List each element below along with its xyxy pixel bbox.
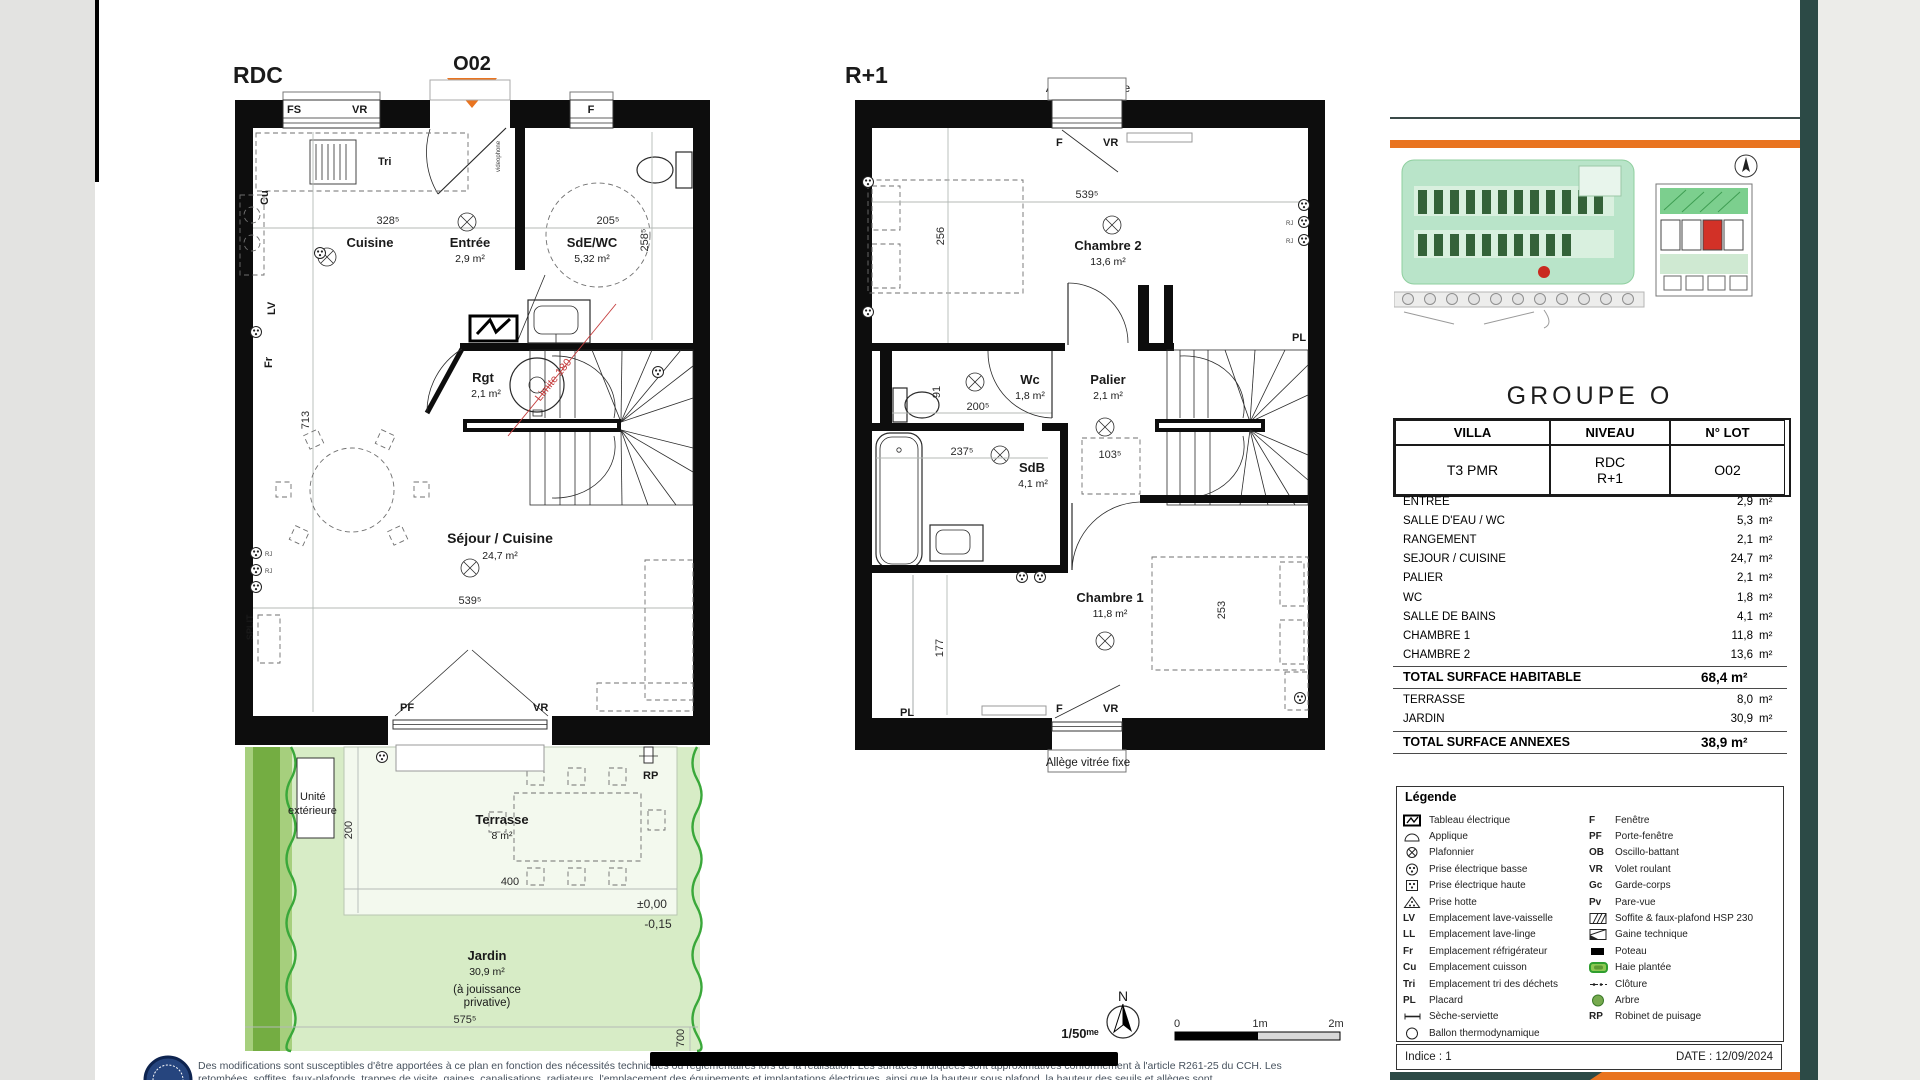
title-block-panel: GROUPE O VILLA NIVEAU N° LOT T3 PMR RDC … [1390,0,1800,1080]
surface-value: 2,1 [1701,572,1753,584]
r1-dim-256: 256 [935,227,947,245]
page-margin-right [1818,0,1920,1080]
rdc-vr-label: VR [352,104,367,116]
surface-unit: m² [1753,496,1787,508]
niveau-line1: RDC [1551,454,1669,470]
lv-label: LV [266,301,278,315]
legend-item: Gaine technique [1589,927,1779,943]
r1-dim-177: 177 [934,639,946,657]
scale-2m: 2m [1328,1018,1343,1030]
wc-area: 1,8 m² [1015,390,1045,402]
tri-abbr: Tri [1403,979,1429,990]
panel-divider-line [1390,117,1800,119]
legend-label: Gaine technique [1615,929,1688,940]
redaction-bar [650,1052,1118,1066]
plan-sheet: Unité extérieure 200 Terrasse 8 m² 400 R… [0,0,1920,1080]
annexe-unit: m² [1753,713,1787,725]
surface-label: SEJOUR / CUISINE [1393,553,1701,565]
seche-serviette-icon [1403,1010,1429,1023]
surface-label: SALLE D'EAU / WC [1393,515,1701,527]
group-title: GROUPE O [1393,382,1787,411]
entree-label: Entrée [450,235,490,250]
pl-right-label: PL [1292,332,1306,344]
legend-item: OBOscillo-battant [1589,845,1779,861]
gaine-icon [1589,928,1615,941]
legend-item: Tableau électrique [1403,812,1587,828]
annexe-value: 8,0 [1701,694,1753,706]
annexe-label: JARDIN [1393,713,1701,725]
floor-plans-drawing: Unité extérieure 200 Terrasse 8 m² 400 R… [0,0,1390,1080]
surface-row: CHAMBRE 111,8m² [1393,626,1787,645]
rp-label: RP [643,770,658,782]
surface-row: SEJOUR / CUISINE24,7m² [1393,550,1787,569]
rule [1393,666,1787,667]
f-abbr: F [1589,815,1615,826]
legend-label: Haie plantée [1615,962,1671,973]
dim-328: 328⁵ [377,215,400,227]
rdc-f-label: F [588,104,595,116]
legend-label: Emplacement réfrigérateur [1429,946,1547,957]
surfaces-list: ENTREE2,9m² SALLE D'EAU / WC5,3m² RANGEM… [1393,492,1787,665]
rule [1393,731,1787,732]
certification-stamp [145,1057,191,1080]
surface-value: 2,1 [1701,534,1753,546]
tableau-electrique-icon [1403,814,1429,827]
unite-exterieure-label: Unité [300,791,326,803]
surface-unit: m² [1753,630,1787,642]
legend-label: Arbre [1615,995,1639,1006]
arbre-icon [1589,994,1615,1007]
dim-258: 258⁵ [639,229,651,252]
legend-label: Applique [1429,831,1468,842]
vr-bottom-label: VR [533,702,548,714]
compass-icon [1735,155,1757,177]
surface-row: CHAMBRE 213,6m² [1393,646,1787,665]
legend-label: Tableau électrique [1429,815,1510,826]
legend-item: Arbre [1589,992,1779,1008]
annexe-label: TERRASSE [1393,694,1701,706]
legend-label: Fenêtre [1615,815,1649,826]
unite-exterieure-label2: extérieure [288,805,337,817]
rdc-title: RDC [233,62,283,88]
legend-label: Robinet de puisage [1615,1011,1701,1022]
north-label: N [1118,988,1128,1004]
palier-label: Palier [1090,372,1125,387]
ll-abbr: LL [1403,929,1429,940]
surface-row: PALIER2,1m² [1393,569,1787,588]
rdc-fs-label: FS [287,104,301,116]
surface-unit: m² [1753,534,1787,546]
surface-value: 24,7 [1701,553,1753,565]
scale-ratio: 1/50ᵐᵉ [1061,1026,1099,1041]
plafonnier-icon [1403,846,1429,859]
rdc-plan: RDC O02 FS VR F videophone [233,53,710,771]
rj-label-2: RJ [265,569,272,575]
footer-teal-stripe [1390,1072,1602,1080]
dim-713: 713 [300,411,312,429]
legend-item: Poteau [1589,943,1779,959]
r1-rj-1: RJ [1286,221,1293,227]
allege-bottom-label: Allège vitrée fixe [1046,757,1130,769]
tri-label: Tri [378,156,391,168]
sde-area: 5,32 m² [574,253,610,265]
legend-label: Emplacement lave-linge [1429,929,1536,940]
r1-f-bottom: F [1056,703,1063,715]
total-annexes-row: TOTAL SURFACE ANNEXES 38,9 m² [1393,735,1787,750]
legend-item: VRVolet roulant [1589,861,1779,877]
scale-0: 0 [1174,1018,1180,1030]
rj-label-1: RJ [265,552,272,558]
legend-label: Pare-vue [1615,897,1656,908]
legend-item: LVEmplacement lave-vaisselle [1403,910,1587,926]
legend-item: PFPorte-fenêtre [1589,828,1779,844]
surface-label: CHAMBRE 1 [1393,630,1701,642]
legend-item: Plafonnier [1403,845,1587,861]
videophone-label: videophone [496,140,502,172]
r1-dim-200: 200⁵ [967,401,990,413]
r1-dim-91: 91 [931,386,943,398]
cu-abbr: Cu [1403,962,1429,973]
ballon-icon [1403,1027,1429,1040]
legend-label: Garde-corps [1615,880,1671,891]
haie-plantee-icon [1589,961,1615,974]
annexe-row: JARDIN30,9m² [1393,709,1787,728]
r1-vr-top: VR [1103,137,1118,149]
info-header-niveau: NIVEAU [1550,420,1670,445]
north-compass-icon: N [1107,988,1139,1038]
sejour-area: 24,7 m² [482,550,518,562]
r1-dim-539: 539⁵ [1076,189,1099,201]
terrasse-area: 8 m² [492,830,514,842]
chambre1-area: 11,8 m² [1093,608,1128,620]
legend-item: Prise électrique haute [1403,878,1587,894]
legend-title: Légende [1405,790,1456,804]
lot-marker-label: O02 [453,53,491,75]
surface-label: CHAMBRE 2 [1393,649,1701,661]
legend-item: Ballon thermodynamique [1403,1025,1587,1041]
dim-575: 575⁵ [454,1014,477,1026]
revision-bar: Indice : 1 DATE : 12/09/2024 [1396,1044,1782,1070]
legend-label: Prise électrique basse [1429,864,1527,875]
chambre2-label: Chambre 2 [1074,238,1141,253]
surface-value: 4,1 [1701,611,1753,623]
page-edge-line [95,0,99,182]
pf-abbr: PF [1589,831,1615,842]
ob-abbr: OB [1589,847,1615,858]
terrasse-label: Terrasse [475,812,528,827]
surface-value: 5,3 [1701,515,1753,527]
legend-label: Placard [1429,995,1463,1006]
surface-value: 11,8 [1701,630,1753,642]
r1-vr-bottom: VR [1103,703,1118,715]
legend-item: Haie plantée [1589,960,1779,976]
legend-item: FrEmplacement réfrigérateur [1403,943,1587,959]
r1-dim-253: 253 [1216,601,1228,619]
prise-basse-icon [1403,863,1429,876]
r1-plan: R+1 Allège vitrée fixe F VR Chambre 2 13… [845,62,1325,772]
legend-label: Emplacement lave-vaisselle [1429,913,1553,924]
legend-item: Soffite & faux-plafond HSP 230 [1589,910,1779,926]
legend-label: Prise électrique haute [1429,880,1526,891]
legend-column-right: FFenêtre PFPorte-fenêtre OBOscillo-batta… [1589,812,1779,1025]
pl-abbr: PL [1403,995,1429,1006]
r1-title: R+1 [845,62,888,88]
legend-label: Poteau [1615,946,1647,957]
surface-value: 13,6 [1701,649,1753,661]
total-habitable-label: TOTAL SURFACE HABITABLE [1393,670,1701,685]
surface-unit: m² [1753,649,1787,661]
chambre1-label: Chambre 1 [1076,590,1143,605]
prise-hotte-icon [1403,896,1429,909]
legend-item: LLEmplacement lave-linge [1403,927,1587,943]
surface-row: WC1,8m² [1393,588,1787,607]
dim-205: 205⁵ [597,215,620,227]
info-villa-value: T3 PMR [1395,445,1550,495]
scale-bar: 1/50ᵐᵉ N 0 1m 2m [1061,988,1343,1041]
gc-abbr: Gc [1589,880,1615,891]
footer-stripes [1390,1072,1800,1080]
side-accent-strip [1800,0,1818,1080]
legend-label: Volet roulant [1615,864,1671,875]
surface-row: SALLE DE BAINS4,1m² [1393,607,1787,626]
dim-700: 700 [675,1029,687,1047]
jardin-area: 30,9 m² [469,966,505,978]
rule [1393,753,1787,754]
rgt-area: 2,1 m² [471,388,501,400]
jardin-label: Jardin [467,948,506,963]
legend-box: Légende Tableau électrique Applique Plaf… [1396,786,1784,1042]
annexe-row: TERRASSE8,0m² [1393,690,1787,709]
cloture-icon [1589,978,1615,991]
indice-label: Indice : 1 [1405,1051,1452,1063]
legend-label: Emplacement cuisson [1429,962,1527,973]
lot-info-table: VILLA NIVEAU N° LOT T3 PMR RDC R+1 O02 [1393,418,1791,497]
page-margin-left [0,0,95,1080]
surface-value: 1,8 [1701,592,1753,604]
surface-row: ENTREE2,9m² [1393,492,1787,511]
annexes-list: TERRASSE8,0m² JARDIN30,9m² [1393,690,1787,728]
surface-unit: m² [1753,553,1787,565]
date-label: DATE : 12/09/2024 [1676,1051,1773,1063]
surface-label: SALLE DE BAINS [1393,611,1701,623]
r1-dim-237: 237⁵ [951,446,974,458]
info-niveau-value: RDC R+1 [1550,445,1670,495]
surface-label: ENTREE [1393,496,1701,508]
entree-area: 2,9 m² [455,253,485,265]
legend-label: Porte-fenêtre [1615,831,1673,842]
legend-item: Prise hotte [1403,894,1587,910]
total-annexes-label: TOTAL SURFACE ANNEXES [1393,735,1701,750]
annexe-value: 30,9 [1701,713,1753,725]
jouissance-2: privative) [464,997,511,1009]
surface-row: RANGEMENT2,1m² [1393,530,1787,549]
surface-unit: m² [1753,611,1787,623]
legend-label: Soffite & faux-plafond HSP 230 [1615,913,1753,924]
info-header-villa: VILLA [1395,420,1550,445]
villa-type: T3 PMR [1396,462,1549,478]
dim-400: 400 [501,876,519,888]
panel-orange-bar [1390,140,1800,148]
sdb-label: SdB [1019,460,1045,475]
r1-dim-103: 103⁵ [1099,449,1122,461]
rule [1393,688,1787,689]
info-lot-value: O02 [1670,445,1785,495]
legend-item: TriEmplacement tri des déchets [1403,976,1587,992]
soffite-icon [1589,912,1615,925]
sejour-label: Séjour / Cuisine [447,530,553,546]
legend-label: Ballon thermodynamique [1429,1028,1540,1039]
legend-label: Sèche-serviette [1429,1011,1498,1022]
level-minus: -0,15 [644,917,672,931]
legend-item: GcGarde-corps [1589,878,1779,894]
surface-label: PALIER [1393,572,1701,584]
cu-label: Cu [259,190,271,205]
legend-label: Clôture [1615,979,1647,990]
site-plans [1394,152,1774,357]
site-plan-map [1394,160,1644,328]
applique-icon [1403,830,1429,843]
dim-200: 200 [343,821,355,839]
rgt-label: Rgt [472,370,494,385]
vr-abbr: VR [1589,864,1615,875]
surface-label: WC [1393,592,1701,604]
fr-abbr: Fr [1403,946,1429,957]
palier-area: 2,1 m² [1093,390,1123,402]
poteau-icon [1589,945,1615,958]
legend-item: Sèche-serviette [1403,1009,1587,1025]
total-habitable-row: TOTAL SURFACE HABITABLE 68,4 m² [1393,670,1787,685]
surface-unit: m² [1753,572,1787,584]
legend-item: PLPlacard [1403,992,1587,1008]
legend-item: PvPare-vue [1589,894,1779,910]
legend-item: FFenêtre [1589,812,1779,828]
wc-label: Wc [1020,372,1040,387]
legend-item: CuEmplacement cuisson [1403,960,1587,976]
surface-unit: m² [1753,592,1787,604]
garden-area: Unité extérieure 200 Terrasse 8 m² 400 R… [245,747,702,1051]
legend-item: Applique [1403,828,1587,844]
legend-label: Prise hotte [1429,897,1477,908]
fr-label: Fr [263,356,275,368]
total-habitable-value: 68,4 m² [1701,670,1787,685]
legend-item: Prise électrique basse [1403,861,1587,877]
legend-label: Emplacement tri des déchets [1429,979,1558,990]
legend-item: Clôture [1589,976,1779,992]
lot-location-diagram [1656,184,1752,296]
split-label: SPLIT [245,614,255,640]
cuisine-label: Cuisine [347,235,394,250]
legend-item: RPRobinet de puisage [1589,1009,1779,1025]
info-header-lot: N° LOT [1670,420,1785,445]
legend-label: Plafonnier [1429,847,1474,858]
pv-abbr: Pv [1589,897,1615,908]
scale-1m: 1m [1252,1018,1267,1030]
annexe-unit: m² [1753,694,1787,706]
lot-number: O02 [1671,462,1784,478]
r1-rj-2: RJ [1286,239,1293,245]
rp-abbr: RP [1589,1011,1615,1022]
surface-row: SALLE D'EAU / WC5,3m² [1393,511,1787,530]
total-annexes-value: 38,9 m² [1701,735,1787,750]
pf-label: PF [400,702,414,714]
pl-bottom-label: PL [900,707,914,719]
surface-value: 2,9 [1701,496,1753,508]
sdb-area: 4,1 m² [1018,478,1048,490]
legend-label: Oscillo-battant [1615,847,1679,858]
sde-label: SdE/WC [567,235,618,250]
niveau-line2: R+1 [1551,470,1669,486]
surface-label: RANGEMENT [1393,534,1701,546]
legend-column-left: Tableau électrique Applique Plafonnier P… [1403,812,1587,1041]
prise-haute-icon [1403,879,1429,892]
surface-unit: m² [1753,515,1787,527]
lv-abbr: LV [1403,913,1429,924]
dim-539-rdc: 539⁵ [459,595,482,607]
level-zero: ±0,00 [637,897,667,911]
chambre2-area: 13,6 m² [1090,256,1126,268]
jouissance-1: (à jouissance [453,984,521,996]
r1-f-top: F [1056,137,1063,149]
